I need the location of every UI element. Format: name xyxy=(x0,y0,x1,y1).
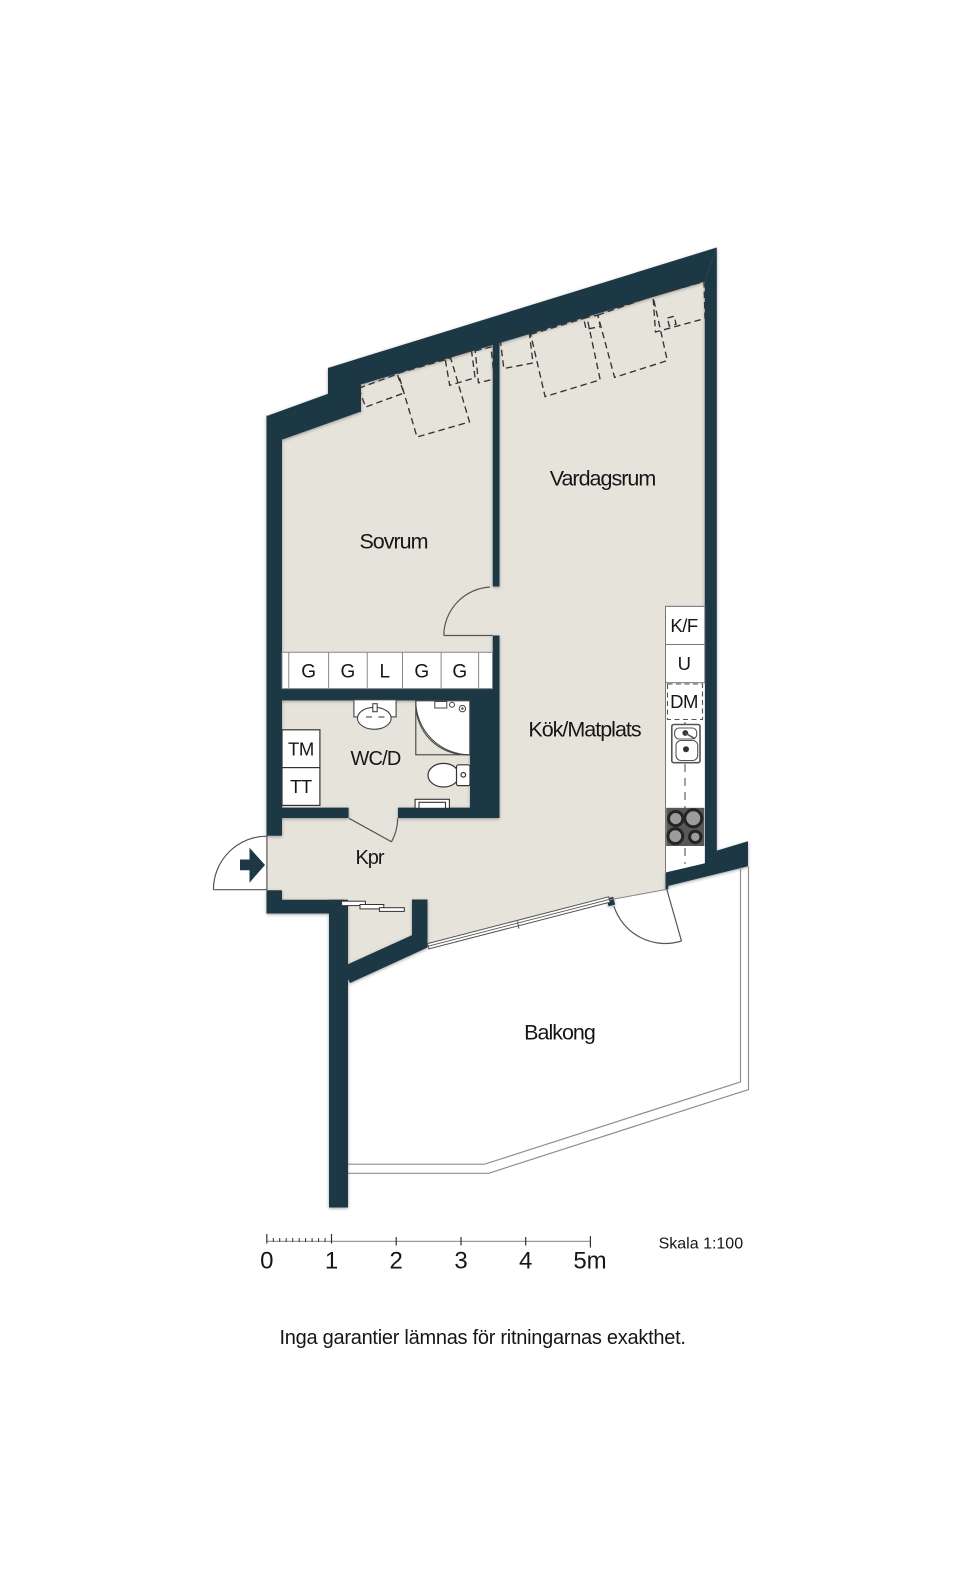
svg-text:Kpr: Kpr xyxy=(355,847,384,869)
svg-text:Skala 1:100: Skala 1:100 xyxy=(659,1235,744,1252)
svg-text:0: 0 xyxy=(260,1248,273,1275)
svg-text:TT: TT xyxy=(290,776,312,797)
svg-text:Inga garantier lämnas för ritn: Inga garantier lämnas för ritningarnas e… xyxy=(280,1327,686,1349)
svg-text:1: 1 xyxy=(325,1248,338,1275)
svg-text:Balkong: Balkong xyxy=(524,1021,595,1045)
svg-text:3: 3 xyxy=(454,1248,467,1275)
svg-text:2: 2 xyxy=(390,1248,403,1275)
svg-text:4: 4 xyxy=(519,1248,532,1275)
svg-text:G: G xyxy=(452,662,467,683)
svg-text:G: G xyxy=(414,662,429,683)
svg-text:K/F: K/F xyxy=(670,615,697,636)
svg-text:U: U xyxy=(678,653,691,674)
svg-text:WC/D: WC/D xyxy=(350,748,400,770)
svg-text:Kök/Matplats: Kök/Matplats xyxy=(528,718,641,742)
svg-text:TM: TM xyxy=(288,738,314,759)
svg-text:Sovrum: Sovrum xyxy=(359,530,427,554)
svg-text:L: L xyxy=(380,662,391,683)
svg-text:G: G xyxy=(301,662,316,683)
svg-text:G: G xyxy=(341,662,356,683)
svg-text:DM: DM xyxy=(670,691,698,712)
svg-text:5m: 5m xyxy=(573,1248,606,1275)
svg-text:Vardagsrum: Vardagsrum xyxy=(550,467,656,491)
